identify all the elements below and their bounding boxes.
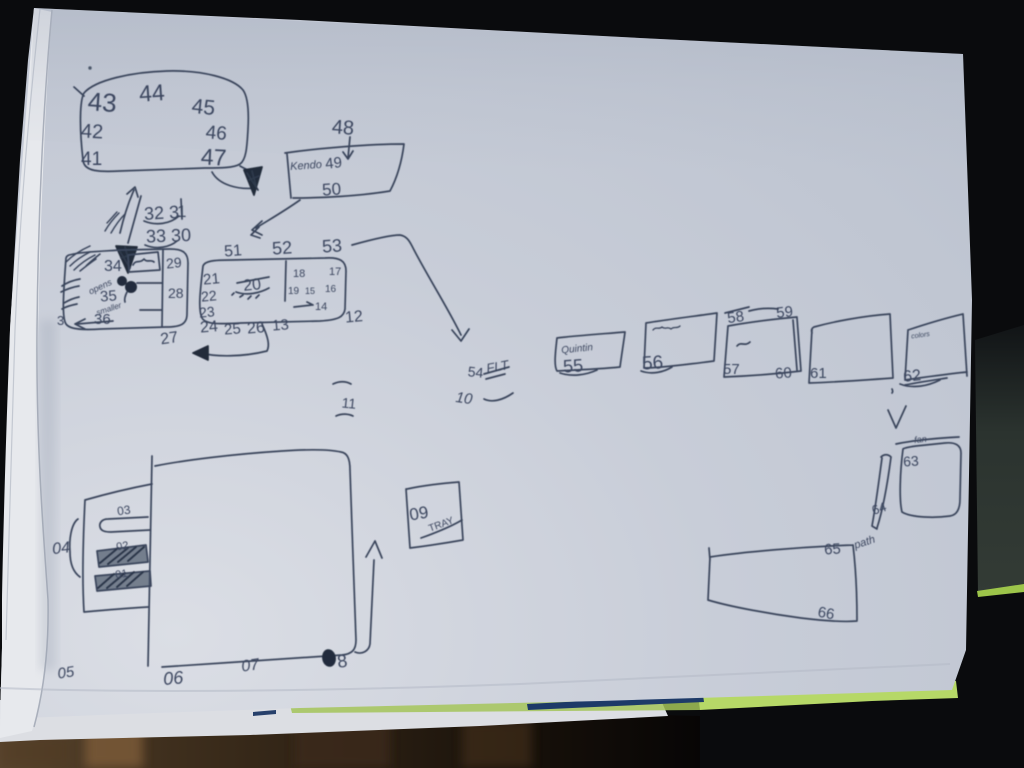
svg-text:02: 02	[116, 540, 130, 554]
svg-text:07: 07	[240, 656, 261, 675]
svg-text:48: 48	[331, 116, 355, 139]
svg-text:05: 05	[56, 663, 76, 682]
svg-text:45: 45	[191, 95, 217, 120]
svg-text:01: 01	[115, 568, 129, 582]
svg-text:63: 63	[903, 452, 920, 469]
svg-text:41: 41	[81, 149, 102, 170]
svg-text:25: 25	[223, 320, 241, 338]
svg-text:33 30: 33 30	[146, 225, 192, 247]
svg-text:44: 44	[138, 79, 166, 107]
svg-text:42: 42	[80, 120, 103, 143]
svg-text:03: 03	[116, 503, 131, 519]
svg-text:06: 06	[162, 667, 185, 689]
svg-text:54: 54	[467, 363, 484, 381]
svg-text:16: 16	[325, 284, 337, 295]
svg-text:fan: fan	[914, 434, 927, 445]
svg-text:29: 29	[165, 254, 182, 272]
svg-text:53: 53	[321, 235, 342, 256]
svg-text:43: 43	[87, 86, 118, 118]
svg-text:11: 11	[341, 394, 357, 411]
svg-text:57: 57	[723, 361, 740, 378]
svg-text:46: 46	[205, 122, 228, 145]
svg-text:26: 26	[246, 319, 265, 337]
svg-text:24: 24	[199, 318, 218, 336]
svg-text:09: 09	[408, 503, 430, 525]
svg-text:14: 14	[315, 301, 327, 313]
svg-text:10: 10	[455, 389, 475, 408]
svg-text:15: 15	[305, 286, 315, 296]
svg-text:32 3: 32 3	[144, 202, 180, 224]
svg-text:19: 19	[288, 286, 300, 297]
svg-text:61: 61	[810, 365, 827, 382]
svg-text:51: 51	[224, 242, 243, 260]
svg-text:17: 17	[329, 266, 341, 278]
svg-text:36: 36	[94, 311, 111, 328]
svg-text:28: 28	[168, 285, 184, 301]
svg-text:49: 49	[324, 154, 342, 173]
svg-text:52: 52	[271, 237, 292, 258]
svg-text:47: 47	[200, 143, 227, 170]
svg-text:12: 12	[344, 308, 363, 326]
svg-text:62: 62	[902, 367, 922, 386]
svg-text:18: 18	[293, 268, 305, 280]
svg-text:34: 34	[104, 258, 122, 275]
svg-text:59: 59	[775, 303, 793, 322]
svg-text:04: 04	[51, 539, 71, 558]
svg-text:22: 22	[200, 287, 217, 304]
svg-text:13: 13	[271, 316, 289, 334]
svg-text:55: 55	[562, 355, 583, 376]
svg-text:66: 66	[816, 604, 835, 624]
svg-text:60: 60	[774, 364, 792, 382]
svg-text:27: 27	[159, 329, 179, 348]
svg-text:Kendo: Kendo	[290, 159, 323, 173]
svg-text:65: 65	[824, 540, 842, 558]
svg-text:3: 3	[57, 313, 64, 328]
svg-text:50: 50	[321, 179, 341, 199]
svg-text:21: 21	[202, 270, 220, 288]
